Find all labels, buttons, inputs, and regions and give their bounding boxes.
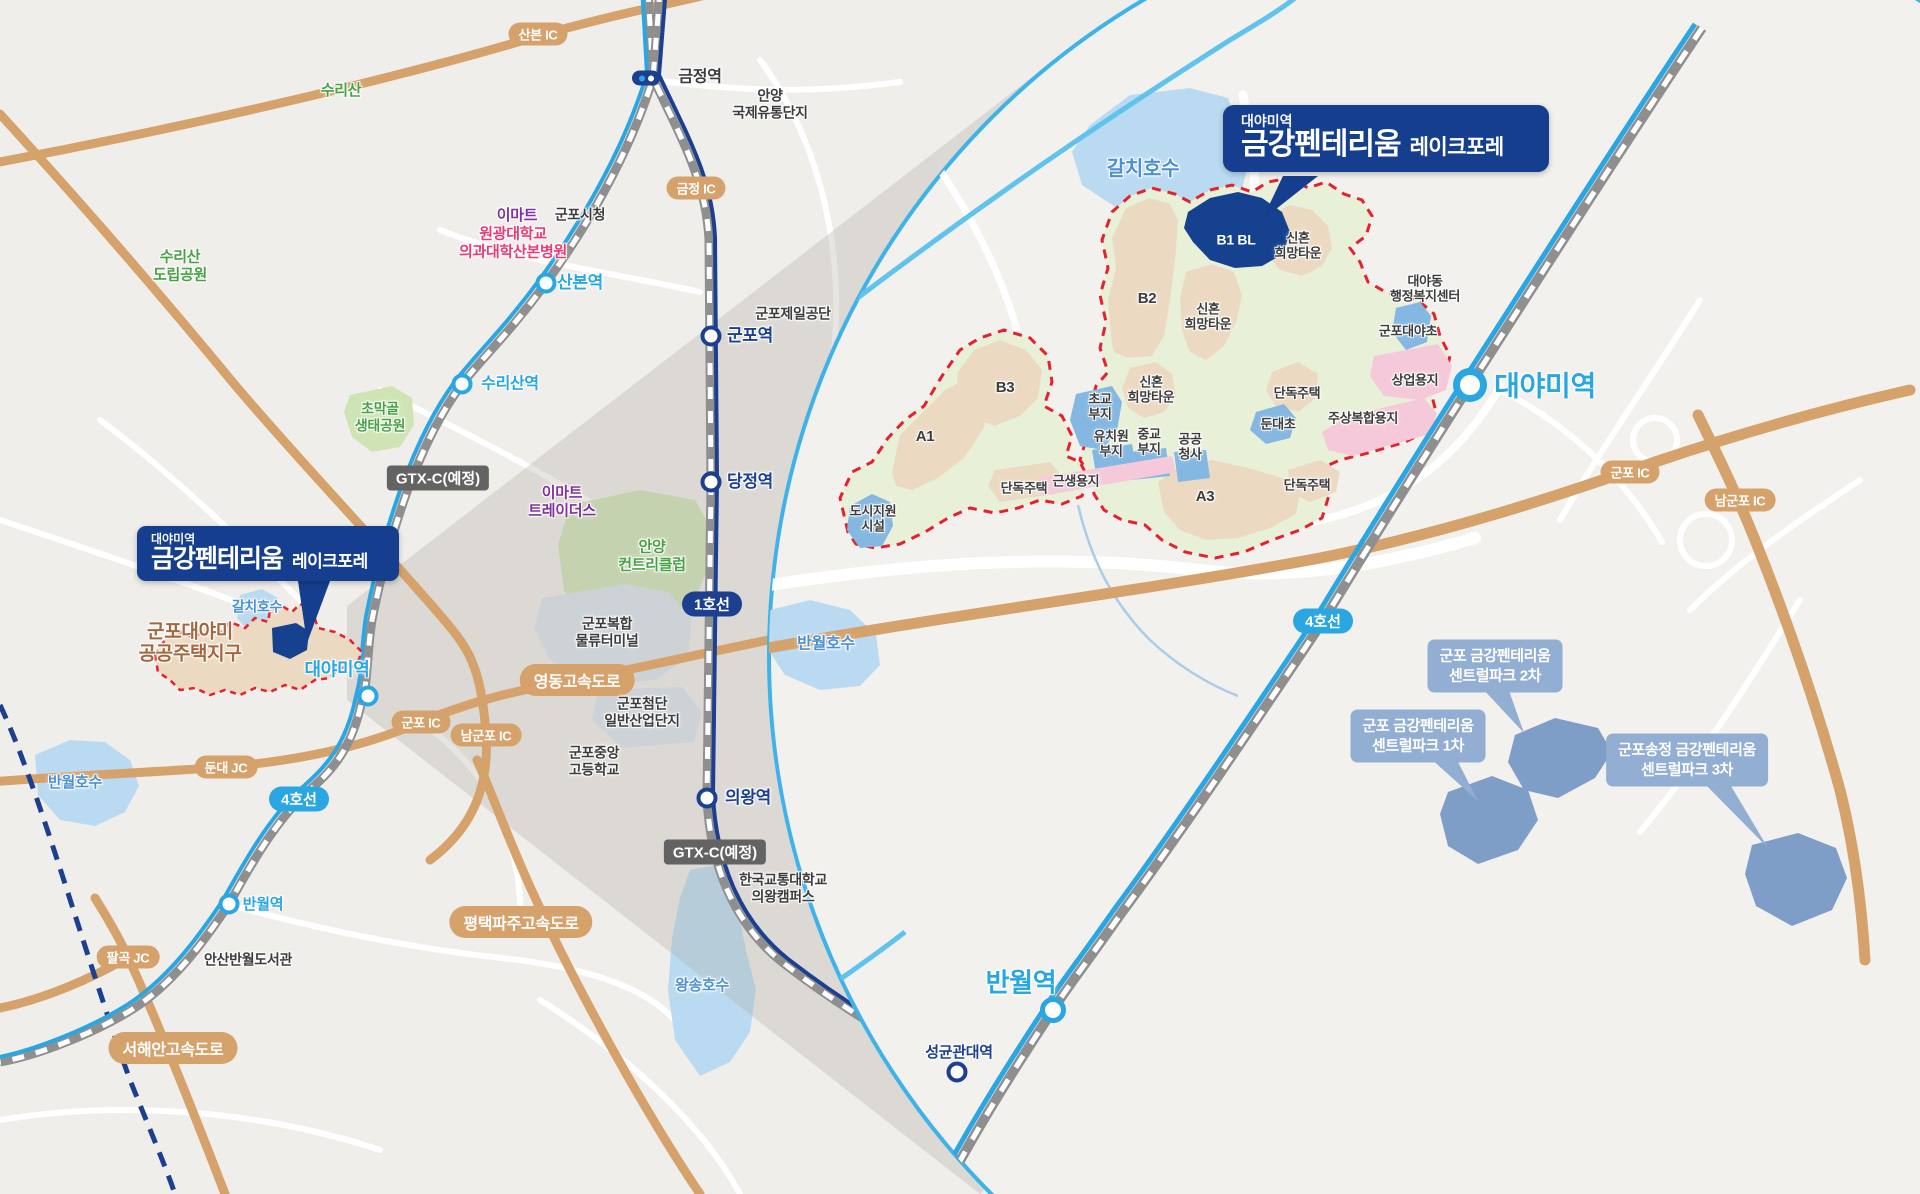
yuchiwon-site-label: 유치원 부지 [1094, 429, 1129, 460]
gunpo-ic-pill-inset: 군포 IC [1600, 461, 1659, 484]
sanbon-station-marker [536, 273, 557, 294]
surisan-station-marker [452, 374, 473, 395]
surisan-station-label: 수리산역 [481, 376, 539, 395]
banwol-lake-label-inset: 반월호수 [797, 636, 855, 655]
parcel-b1bl-label: B1 BL [1217, 232, 1256, 249]
banwol-station-marker-left [219, 894, 240, 915]
palgok-jc-pill: 팔곡 JC [97, 946, 160, 969]
surisan-park-label: 수리산 도립공원 [153, 248, 207, 283]
gunpo-ic-pill: 군포 IC [391, 711, 450, 734]
gunpo-jungang-label: 군포중앙 고등학교 [569, 744, 619, 777]
apt-callout-centralpark1: 군포 금강펜테리움 센트럴파크 1차 [1351, 710, 1486, 763]
gunpo-jeil-label: 군포제일공단 [755, 306, 830, 323]
sanbon-station-label: 산본역 [557, 273, 603, 293]
dandok-label-3: 단독주택 [1284, 477, 1331, 492]
dundae-elementary-label: 둔대초 [1261, 416, 1296, 431]
namgunpo-ic-pill-inset: 남군포 IC [1705, 489, 1776, 512]
geumjeong-station-marker [632, 71, 660, 86]
chomakgol-park-label: 초막골 생태공원 [355, 400, 405, 433]
dundae-jc-pill: 둔대 JC [195, 756, 258, 779]
geunsaeng-label: 근생용지 [1053, 473, 1100, 488]
ansan-library-label: 안산반월도서관 [204, 952, 292, 969]
main-callout-left: 대야미역 금강펜테리움 레이크포레 [137, 526, 399, 581]
wonkwang-hospital-label: 원광대학교 의과대학산본병원 [459, 225, 567, 260]
line1-badge: 1호선 [682, 592, 742, 617]
parcel-b3-label: B3 [996, 379, 1015, 397]
banwol-lake-label-left: 반월호수 [48, 774, 102, 792]
main-callout-inset-tag: 대야미역 [1241, 114, 1531, 129]
uiwang-station-label: 의왕역 [725, 788, 771, 808]
sinhon-hope-town-label-3: 신혼 희망타운 [1128, 375, 1175, 406]
parcel-a3-label: A3 [1196, 488, 1215, 506]
galchi-lake-label-inset: 갈치호수 [1107, 158, 1179, 182]
gunpo-station-marker [701, 326, 722, 347]
banwol-station-label-inset: 반월역 [986, 968, 1057, 999]
chogyo-site-label: 초교 부지 [1088, 392, 1111, 423]
pyeongtaek-paju-expressway-pill: 평택파주고속도로 [449, 906, 592, 938]
main-callout-left-series: 레이크포레 [292, 547, 368, 572]
dandok-label-2: 단독주택 [1274, 385, 1321, 400]
gunpo-logistics-label: 군포복합 물류터미널 [576, 615, 639, 648]
namgunpo-ic-pill: 남군포 IC [451, 724, 522, 747]
gtx-c-badge-1: GTX-C(예정) [387, 466, 489, 491]
gunpo-station-label: 군포역 [727, 326, 773, 346]
surisan-label: 수리산 [321, 82, 362, 100]
main-callout-left-tag: 대야미역 [151, 533, 385, 546]
gunpo-daeya-elementary-label: 군포대야초 [1379, 323, 1437, 338]
daeyami-station-label-inset: 대야미역 [1494, 369, 1596, 402]
sinhon-hope-town-label-2: 신혼 희망타운 [1185, 302, 1232, 333]
banwol-station-label-left: 반월역 [243, 896, 284, 914]
line4-badge-inset: 4호선 [1293, 609, 1353, 634]
parcel-b2-label: B2 [1138, 290, 1157, 308]
jusang-label: 주상복합용지 [1328, 410, 1398, 425]
banwol-station-marker-inset [1040, 997, 1066, 1023]
galchi-lake-label-left: 갈치호수 [232, 599, 282, 616]
dangjeong-station-label: 당정역 [727, 472, 773, 492]
anyang-distribution-label: 안양 국제유통단지 [732, 87, 807, 120]
wangsong-lake-label: 왕송호수 [675, 977, 729, 995]
emart-traders-label: 이마트 트레이더스 [528, 484, 596, 519]
main-callout-inset-series: 레이크포레 [1410, 131, 1504, 161]
emart-label: 이마트 [497, 207, 538, 225]
junggyo-site-label: 중교 부지 [1137, 427, 1160, 458]
parcel-a1-label: A1 [916, 428, 935, 446]
dangjeong-station-marker [701, 472, 722, 493]
daeya-admin-center-label: 대야동 행정복지센터 [1390, 274, 1460, 305]
seohaean-expressway-pill: 서해안고속도로 [109, 1032, 238, 1064]
gunpo-cityhall-label: 군포시청 [555, 207, 605, 224]
map-graphics [0, 0, 1920, 1194]
gonggong-cheongsa-label: 공공 청사 [1178, 432, 1201, 463]
main-callout-inset-brand: 금강펜테리움 [1241, 129, 1401, 161]
apt-callout-centralpark2: 군포 금강펜테리움 센트럴파크 2차 [1428, 640, 1563, 693]
korea-univ-label: 한국교통대학교 의왕캠퍼스 [739, 871, 827, 904]
geumjeong-ic-pill: 금정 IC [666, 177, 725, 200]
line4-badge-left: 4호선 [269, 787, 329, 812]
daeyami-station-marker-left [358, 686, 379, 707]
gtx-c-badge-2: GTX-C(예정) [664, 840, 766, 865]
sinhon-hope-town-label-1: 신혼 희망타운 [1275, 231, 1322, 262]
anyang-cc-label: 안양 컨트리클럽 [618, 538, 686, 573]
daeyami-station-marker-inset [1453, 368, 1487, 402]
main-callout-inset: 대야미역 금강펜테리움 레이크포레 [1223, 105, 1549, 172]
map-canvas: 산본 IC 금정 IC 군포 IC 남군포 IC 둔대 JC 팔곡 JC 군포 … [0, 0, 1920, 1194]
uiwang-station-marker [697, 788, 718, 809]
gunpo-hightech-label: 군포첨단 일반산업단지 [604, 695, 679, 728]
sungkyunkwan-station-label: 성균관대역 [925, 1044, 993, 1062]
district-title-label: 군포대야미 공공주택지구 [138, 622, 241, 667]
main-callout-left-brand: 금강펜테리움 [151, 546, 283, 572]
sangeop-label: 상업용지 [1392, 372, 1439, 387]
dosi-jiwon-label: 도시지원 시설 [850, 504, 897, 535]
daeyami-station-label-left: 대야미역 [304, 659, 369, 680]
dandok-label-1: 단독주택 [1001, 480, 1048, 495]
apt-callout-centralpark3: 군포송정 금강펜테리움 센트럴파크 3차 [1606, 734, 1768, 787]
sanbon-ic-pill: 산본 IC [508, 23, 567, 46]
geumjeong-station-label: 금정역 [678, 69, 721, 88]
sungkyunkwan-station-marker [947, 1062, 968, 1083]
yeongdong-expressway-pill: 영동고속도로 [520, 664, 635, 696]
zoom-circle [769, 0, 1920, 1194]
